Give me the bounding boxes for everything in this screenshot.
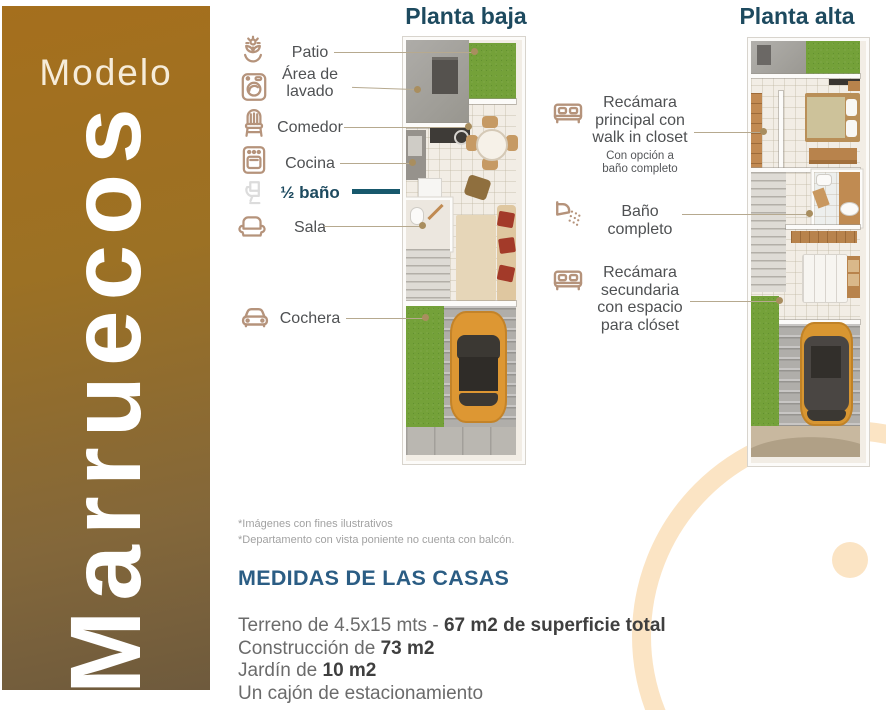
leader-dot	[422, 314, 429, 321]
car-roof	[459, 357, 498, 391]
nightstand	[848, 81, 860, 91]
leader-line	[334, 52, 474, 53]
leader-dot	[760, 128, 767, 135]
planta-alta-floor-plan	[748, 38, 869, 466]
label-recamara-secundaria: Recámara secundaria con espacio para cló…	[590, 264, 690, 334]
leader-dot	[471, 48, 478, 55]
secondary-bed	[803, 255, 847, 302]
label-recamara-principal: Recámara principal con walk in closet Co…	[590, 94, 690, 176]
label-line: baño completo	[590, 163, 690, 176]
label-subtext: Con opción a baño completo	[590, 150, 690, 176]
label-line: lavado	[268, 83, 352, 100]
dining-chair	[482, 116, 498, 128]
medidas-heading: MEDIDAS DE LAS CASAS	[238, 566, 509, 591]
leader-dot	[776, 297, 783, 304]
medidas-line: Terreno de 4.5x15 mts - 67 m2 de superfi…	[238, 615, 698, 638]
boiler-unit	[757, 45, 771, 65]
sidewalk	[406, 427, 516, 455]
bath-counter	[839, 172, 860, 225]
sink	[841, 203, 858, 215]
car	[450, 311, 507, 423]
bed-blanket	[807, 97, 845, 138]
shower-icon	[551, 198, 585, 232]
leader-line	[344, 127, 467, 128]
planta-baja-floor-plan	[403, 37, 525, 464]
dining-table	[476, 129, 508, 161]
model-title: Marruecos	[56, 106, 156, 694]
flyer-page: Modelo Marruecos Planta baja Planta alta	[0, 0, 886, 710]
rug	[456, 215, 496, 301]
leader-line	[324, 226, 421, 227]
label-area-de-lavado: Área de lavado	[268, 66, 352, 100]
planta-alta-title: Planta alta	[711, 3, 883, 30]
closet-basket	[848, 260, 859, 272]
car-windshield	[457, 335, 500, 359]
master-bed	[805, 93, 860, 142]
bed-pillow	[846, 120, 857, 137]
label-line: para clóset	[590, 317, 690, 335]
footnotes: *Imágenes con fines ilustrativos *Depart…	[238, 516, 658, 548]
leader-dot	[414, 86, 421, 93]
label-line: Con opción a	[590, 150, 690, 163]
label-comedor: Comedor	[268, 119, 352, 136]
car-icon	[238, 299, 272, 333]
leader-dot	[465, 123, 472, 130]
leader-line	[346, 318, 424, 319]
medidas-line: Un cajón de estacionamiento	[238, 683, 698, 706]
bed-pillow	[846, 99, 857, 116]
half-bath	[406, 200, 450, 249]
medidas-text: Terreno de 4.5x15 mts -	[238, 615, 444, 636]
front-garden	[751, 296, 779, 426]
decorative-dot	[832, 542, 868, 578]
medidas-bold: 67 m2 de superficie total	[444, 615, 666, 636]
wall	[786, 225, 860, 229]
medidas-text: Construcción de	[238, 638, 381, 659]
sofa-cushion	[497, 265, 516, 283]
fridge	[418, 178, 442, 201]
leader-dot	[409, 159, 416, 166]
bed-icon	[551, 262, 585, 296]
shelf	[791, 231, 857, 243]
label-line: walk in closet	[590, 129, 690, 147]
label-sala: Sala	[268, 219, 352, 236]
stairs	[751, 172, 786, 292]
medidas-lines: Terreno de 4.5x15 mts - 67 m2 de superfi…	[238, 615, 698, 705]
toilet	[817, 175, 831, 185]
highlight-line	[352, 189, 400, 194]
medidas-line: Construcción de 73 m2	[238, 638, 698, 661]
dining-chair-icon	[238, 108, 270, 140]
label-line: completo	[590, 221, 690, 239]
leader-line	[690, 301, 778, 302]
laundry-unit	[432, 57, 458, 94]
medidas-bold: 10 m2	[323, 660, 377, 681]
dresser	[809, 148, 857, 164]
medidas-text: Un cajón de estacionamiento	[238, 683, 483, 704]
car	[800, 322, 853, 426]
medidas-bold: 73 m2	[381, 638, 435, 659]
leader-line	[694, 132, 762, 133]
footnote-line: *Imágenes con fines ilustrativos	[238, 516, 658, 532]
bed-icon	[551, 95, 585, 129]
label-line: Baño	[590, 203, 690, 221]
label-line: Recámara	[590, 264, 690, 282]
label-line: Área de	[268, 66, 352, 83]
wall	[469, 99, 516, 104]
label-line: principal con	[590, 112, 690, 130]
label-line: con espacio	[590, 299, 690, 317]
sidewalk	[751, 426, 860, 457]
model-panel: Modelo Marruecos	[2, 6, 210, 690]
toilet-icon	[238, 178, 270, 210]
front-garden	[406, 306, 444, 427]
medidas-text: Jardín de	[238, 660, 323, 681]
car-rear-window	[459, 393, 498, 406]
closet-basket	[848, 274, 859, 286]
stove-icon	[238, 144, 270, 176]
leader-dot	[806, 210, 813, 217]
kitchen-sink	[408, 136, 422, 156]
wall	[751, 74, 860, 78]
planta-baja-title: Planta baja	[380, 3, 552, 30]
plant-icon	[237, 34, 269, 66]
closet-wall	[779, 91, 783, 169]
medidas-line: Jardín de 10 m2	[238, 660, 698, 683]
leader-line	[682, 214, 808, 215]
sofa-icon	[236, 211, 268, 243]
sofa-cushion	[498, 237, 516, 254]
model-eyebrow: Modelo	[2, 52, 210, 94]
car-sunroof	[811, 346, 841, 378]
label-line: secundaria	[590, 282, 690, 300]
leader-line	[340, 163, 412, 164]
label-bano-completo: Baño completo	[590, 203, 690, 238]
washing-machine-icon	[238, 71, 270, 103]
sofa-cushion	[497, 211, 515, 229]
footnote-line: *Departamento con vista poniente no cuen…	[238, 532, 658, 548]
stairs	[406, 249, 450, 305]
leader-dot	[419, 222, 426, 229]
roof-grass	[806, 41, 860, 74]
label-line: Recámara	[590, 94, 690, 112]
label-medio-bano: ½ baño	[268, 184, 352, 201]
car-rear-window	[807, 410, 846, 421]
label-cochera: Cochera	[268, 310, 352, 327]
